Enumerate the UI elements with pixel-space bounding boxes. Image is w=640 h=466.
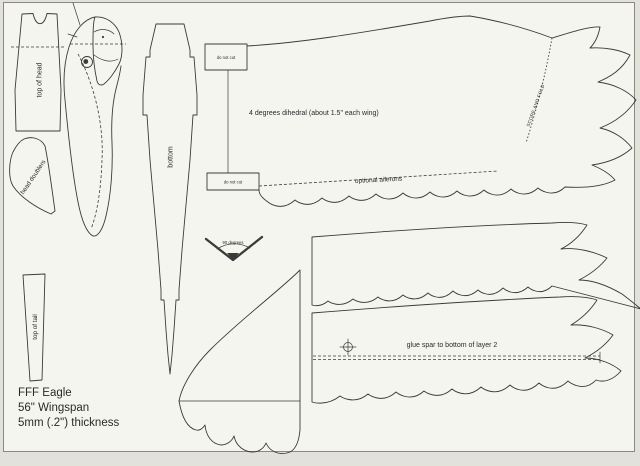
dihedral-gauge: 90 degrees <box>206 237 262 260</box>
label-dihedral-note: 4 degrees dihedral (about 1.5" each wing… <box>249 110 379 117</box>
pattern-piece-top-of-tail: top of tail <box>23 274 45 381</box>
label-head-doublers: head doublers <box>19 159 47 196</box>
plan-thickness: 5mm (.2") thickness <box>18 417 119 429</box>
registration-crosshair <box>340 339 356 355</box>
doubler-placement-line <box>78 54 102 229</box>
label-optional-ailerons: optional ailerons <box>355 175 403 185</box>
beak-outline <box>93 17 122 85</box>
label-score-and-fold: SCORE AND FOLD <box>526 83 546 127</box>
pattern-piece-head-doublers: head doublers <box>10 138 55 214</box>
label-do-not-cut-top: do not cut <box>217 55 236 60</box>
pattern-piece-tail <box>179 270 300 454</box>
eye-pupil <box>83 59 88 64</box>
label-do-not-cut-bottom: do not cut <box>224 180 243 185</box>
title-block: FFF Eagle 56" Wingspan 5mm (.2") thickne… <box>18 387 119 429</box>
pattern-piece-wing-layer2-bottom: glue spar to bottom of layer 2 <box>312 297 621 404</box>
alignment-tick <box>68 34 77 37</box>
pattern-piece-head-profile <box>64 3 126 236</box>
label-gauge-degrees: 90 degrees <box>223 240 244 245</box>
label-bottom: bottom <box>168 146 175 168</box>
label-glue-spar: glue spar to bottom of layer 2 <box>407 342 498 349</box>
plan-sheet: top of head head doublers top of tail <box>0 0 640 466</box>
beak-cere-line <box>94 30 114 34</box>
pattern-piece-wing-layer1: SCORE AND FOLD optional ailerons 4 degre… <box>247 16 636 206</box>
plan-wingspan: 56" Wingspan <box>18 402 89 414</box>
pattern-drawing: top of head head doublers top of tail <box>0 0 640 466</box>
label-top-of-tail: top of tail <box>32 314 39 340</box>
construction-line <box>73 3 80 25</box>
pattern-piece-top-of-head: top of head <box>11 14 65 132</box>
wing-centerline-markers: do not cut do not cut <box>205 44 259 190</box>
label-top-of-head: top of head <box>37 62 44 97</box>
beak-mouth-line <box>94 55 118 61</box>
beak-nostril <box>102 36 104 38</box>
pattern-piece-bottom: bottom <box>143 24 197 374</box>
plan-title: FFF Eagle <box>18 387 72 399</box>
pattern-piece-wing-layer2-top <box>312 222 640 309</box>
